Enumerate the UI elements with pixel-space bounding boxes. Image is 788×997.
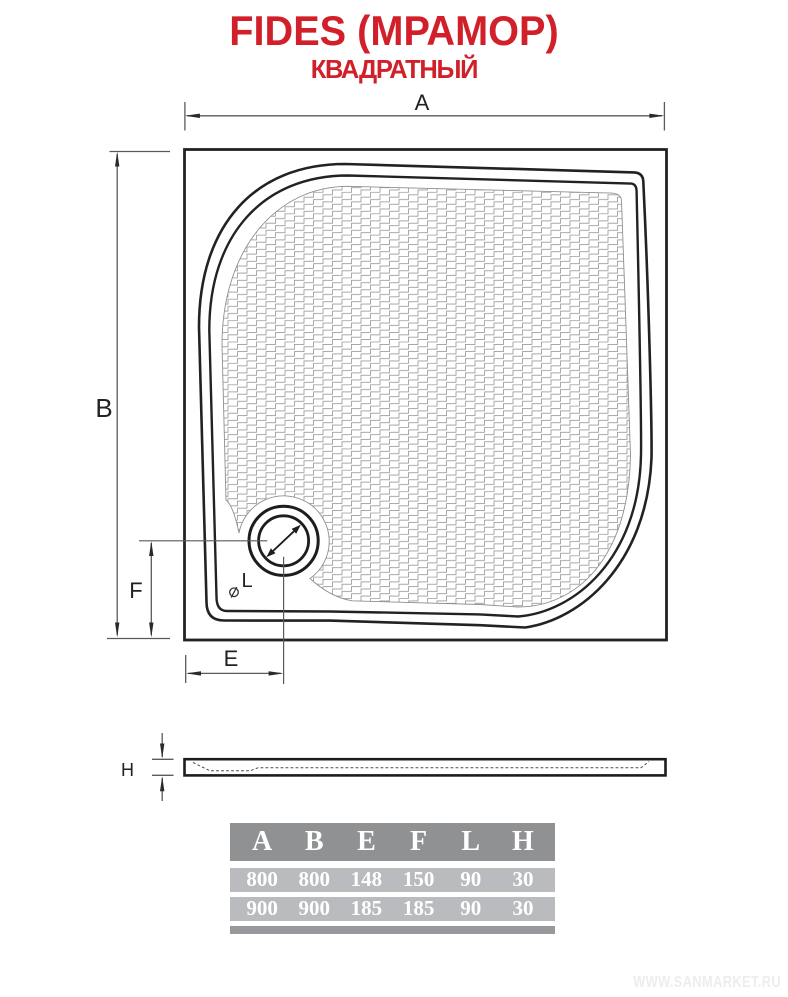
svg-text:H: H xyxy=(121,760,134,780)
svg-text:B: B xyxy=(95,393,112,423)
svg-text:L: L xyxy=(241,570,252,592)
svg-text:A: A xyxy=(415,90,430,115)
svg-text:E: E xyxy=(224,646,239,671)
svg-text:F: F xyxy=(129,578,142,603)
